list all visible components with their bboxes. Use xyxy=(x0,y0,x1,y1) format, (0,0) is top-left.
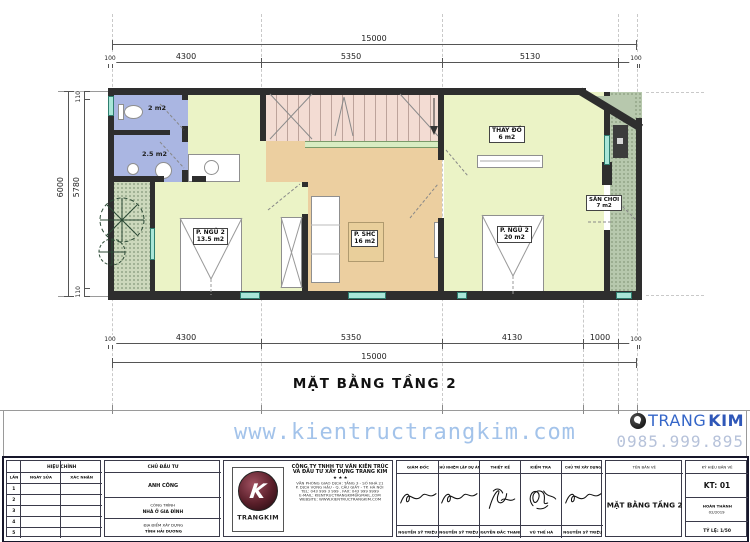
wardrobe xyxy=(281,217,302,288)
wall-bedroom2-right xyxy=(604,230,610,297)
wall-balcony-divider xyxy=(150,260,155,297)
wall-bedroom2-right xyxy=(604,92,610,135)
dim-line-bottom-overall: 15000 xyxy=(112,362,637,363)
signatures-block: GIÁM ĐỐC CHỦ NHIỆM LẬP DỰ ÁN THIẾT KẾ KI… xyxy=(396,460,602,537)
dim-value: 6000 xyxy=(56,177,66,197)
dim-line-top-overall: 15000 xyxy=(112,44,637,45)
signature xyxy=(480,474,520,524)
room-label-bedroom2: P. NGỦ 220 m2 xyxy=(497,226,532,243)
dim-line-left-inner: 110 5780 110 xyxy=(84,91,85,297)
sig-role: KIỂM TRA xyxy=(521,461,561,473)
room-stairs xyxy=(266,92,442,141)
dim-value: 110 xyxy=(74,286,84,297)
investor-name: ANH CÔNG xyxy=(105,473,221,497)
dim-line-bottom-segments: 100 4300 5350 4130 1000 100 xyxy=(108,343,640,344)
meta-status: HOÀN THÀNH 02/2019 xyxy=(686,498,748,521)
revision-col-xacnhan: XÁC NHẬN xyxy=(61,472,102,483)
room-label-thaydo: THAY ĐỒ6 m2 xyxy=(489,126,525,143)
plan-title: MẶT BẰNG TẦNG 2 xyxy=(0,376,750,392)
pedestal-sink xyxy=(127,163,139,175)
signature xyxy=(521,474,561,524)
dim-value: 5350 xyxy=(340,52,362,62)
dim-value: 15000 xyxy=(360,352,387,362)
wall-bedroom1-right xyxy=(302,182,308,187)
window xyxy=(616,292,632,299)
wall-bedroom2-left xyxy=(438,218,444,297)
wall-top xyxy=(108,88,586,95)
wall-bedroom2-left xyxy=(438,88,444,160)
grid-tick xyxy=(112,405,113,414)
title-block: HIỆU CHỈNH LẦN NGÀY SỬA XÁC NHẬN 1 2 3 4… xyxy=(2,456,749,542)
wall-bedroom1-right xyxy=(302,214,308,297)
room-label-sanchoi: SÂN CHƠI7 m2 xyxy=(586,195,622,211)
signature xyxy=(397,474,438,524)
dim-value: 100 xyxy=(629,54,642,64)
dim-value: 4130 xyxy=(501,333,523,343)
room-wc2 xyxy=(112,134,188,182)
drawing-sheet: 15000 100 4300 5350 5130 100 100 4300 53… xyxy=(0,0,750,542)
investor-block: CHỦ ĐẦU TƯ ANH CÔNG CÔNG TRÌNH NHÀ Ở GIA… xyxy=(104,460,220,537)
wall-bath-right xyxy=(182,170,188,182)
drawing-name-header: TÊN BẢN VẼ xyxy=(606,461,683,473)
company-block: K TRANGKIM CÔNG TY TNHH TƯ VẤN KIẾN TRÚC… xyxy=(223,460,393,537)
wall-balcony-divider xyxy=(150,182,155,228)
sig-name: NGUYỄN SỸ TRIỆU xyxy=(439,526,479,538)
dim-value: 5350 xyxy=(340,333,362,343)
drawing-scale: TỶ LỆ: 1/50 xyxy=(686,522,748,538)
watermark-phone: 0985.999.895 xyxy=(616,432,744,451)
company-logo: K TRANGKIM xyxy=(232,467,284,532)
wall-right xyxy=(636,118,642,300)
revision-row-num: 4 xyxy=(7,516,20,527)
dim-line-top-segments: 100 4300 5350 5130 100 xyxy=(108,62,640,63)
grid-tick xyxy=(442,405,443,414)
sig-role: CHỦ TRÌ XÂY DỰNG xyxy=(562,461,603,473)
dim-value: 5130 xyxy=(519,52,541,62)
room-label-wc2: 2.5 m2 xyxy=(142,150,167,158)
stars: ★ ★ ★ xyxy=(333,476,348,480)
room-label-shc: P. SHC16 m2 xyxy=(351,230,378,247)
stair-ledge xyxy=(305,141,438,148)
meta-block: KÝ HIỆU BẢN VẼ KT: 01 HOÀN THÀNH 02/2019… xyxy=(685,460,747,537)
sig-role: THIẾT KẾ xyxy=(480,461,520,473)
trangkim-logo-icon: K xyxy=(238,471,278,511)
dim-value: 4300 xyxy=(175,52,197,62)
revision-table: HIỆU CHỈNH LẦN NGÀY SỬA XÁC NHẬN 1 2 3 4… xyxy=(6,460,101,537)
window xyxy=(457,292,467,299)
wall-bath-divider xyxy=(112,130,170,135)
brand-logo: TRANGKIM xyxy=(630,411,744,430)
dim-value: 110 xyxy=(74,91,84,102)
revision-col-lan: LẦN xyxy=(7,472,20,483)
window xyxy=(348,292,386,299)
company-info: CÔNG TY TNHH TƯ VẤN KIẾN TRÚC VÀ ĐẦU TƯ … xyxy=(288,463,392,536)
revision-row-num: 3 xyxy=(7,505,20,516)
wall-bedroom2-right xyxy=(602,162,612,185)
wall-below-bath xyxy=(108,176,164,182)
drawing-code: KT: 01 xyxy=(686,474,748,497)
sig-name: NGUYỄN ĐẮC THẠNH xyxy=(480,526,520,538)
ac-unit-detail xyxy=(617,138,623,144)
floor-plan: 2 m2 2.5 m2 P. NGỦ 213.5 m2 P. SHC16 m2 … xyxy=(108,88,642,300)
wall-stairs-left xyxy=(260,88,266,141)
trangkim-icon xyxy=(630,413,646,429)
signature xyxy=(439,474,479,524)
window xyxy=(240,292,260,299)
wall-bath-right xyxy=(182,88,188,100)
window xyxy=(150,228,155,260)
vanity-sink xyxy=(204,160,219,175)
project-cell: CÔNG TRÌNH NHÀ Ở GIA ĐÌNH xyxy=(105,498,221,518)
drawing-name: MẶT BẰNG TẦNG 2 xyxy=(606,474,683,538)
dim-value: 100 xyxy=(629,335,642,345)
dim-value: 4300 xyxy=(175,333,197,343)
signature xyxy=(562,474,603,524)
sig-name: NGUYỄN SỸ TRIỆU xyxy=(397,526,438,538)
grid-tick xyxy=(618,405,619,414)
window xyxy=(108,96,114,116)
dim-value: 5780 xyxy=(72,177,82,197)
revision-header: HIỆU CHỈNH xyxy=(21,461,102,472)
revision-row-num: 1 xyxy=(7,483,20,494)
dim-value: 1000 xyxy=(589,333,611,343)
sig-name: NGUYỄN SỸ TRIỆU xyxy=(562,526,603,538)
location-cell: ĐỊA ĐIỂM XÂY DỰNG TỈNH HẢI DƯƠNG xyxy=(105,519,221,538)
revision-row-num: 5 xyxy=(7,527,20,538)
dim-value: 100 xyxy=(103,335,116,345)
sheet-frame xyxy=(3,410,4,457)
sig-role: CHỦ NHIỆM LẬP DỰ ÁN xyxy=(439,461,479,473)
dim-value: 100 xyxy=(103,54,116,64)
window xyxy=(604,135,610,165)
room-label-wc1: 2 m2 xyxy=(148,104,166,112)
grid-line xyxy=(646,92,704,93)
toilet-bowl xyxy=(124,105,143,119)
wall-left xyxy=(108,88,114,300)
dim-value: 15000 xyxy=(360,34,387,44)
grid-line xyxy=(646,295,704,296)
drawing-name-block: TÊN BẢN VẼ MẶT BẰNG TẦNG 2 xyxy=(605,460,682,537)
investor-header: CHỦ ĐẦU TƯ xyxy=(105,461,221,472)
room-balcony xyxy=(108,182,150,297)
revision-row-num: 2 xyxy=(7,494,20,505)
revision-col-ngay: NGÀY SỬA xyxy=(21,472,60,483)
meta-header: KÝ HIỆU BẢN VẼ xyxy=(686,461,748,473)
room-label-bedroom1: P. NGỦ 213.5 m2 xyxy=(193,228,228,245)
grid-tick xyxy=(583,405,584,414)
sofa xyxy=(311,196,340,283)
wall-below-bath xyxy=(192,176,206,182)
trangkim-logo-text: TRANGKIM xyxy=(237,514,279,521)
sig-role: GIÁM ĐỐC xyxy=(397,461,438,473)
grid-tick xyxy=(261,405,262,414)
dresser-shelf xyxy=(477,155,543,168)
dim-line-left-outer: 6000 xyxy=(68,91,69,297)
sig-name: VŨ THẾ HÀ xyxy=(521,526,561,538)
wall-bath-right xyxy=(182,126,188,142)
